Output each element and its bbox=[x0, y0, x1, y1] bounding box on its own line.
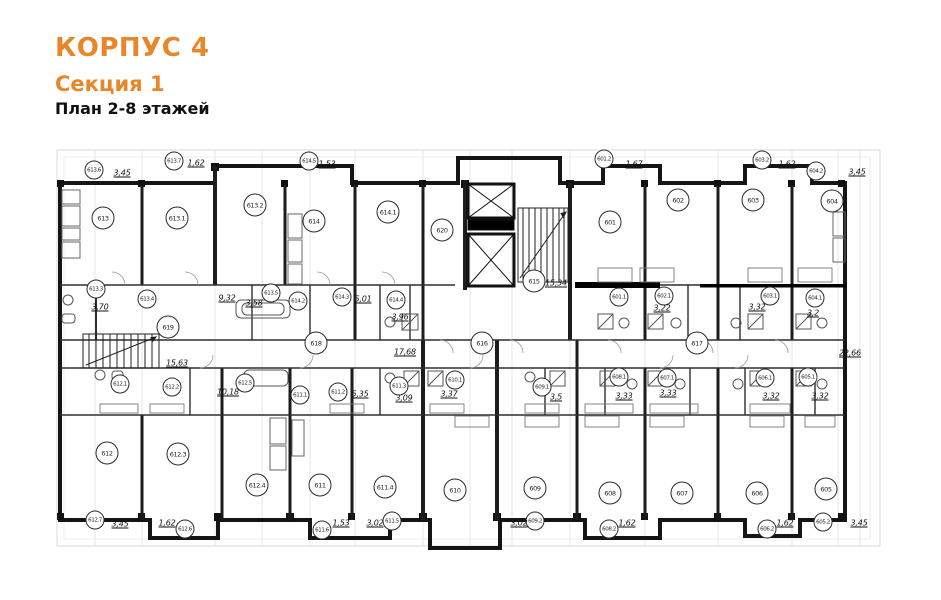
outer-wall bbox=[60, 158, 845, 548]
counters bbox=[100, 268, 835, 427]
door-arcs bbox=[112, 272, 788, 368]
pilasters bbox=[57, 163, 845, 521]
floorplan-drawing bbox=[0, 0, 941, 600]
bath-fixtures bbox=[62, 295, 827, 389]
bearing-bands bbox=[575, 282, 846, 288]
stairs-secondary bbox=[83, 334, 159, 368]
elevator-shafts bbox=[468, 184, 514, 286]
stairs-main bbox=[518, 208, 568, 282]
kitchen-units bbox=[62, 190, 845, 470]
